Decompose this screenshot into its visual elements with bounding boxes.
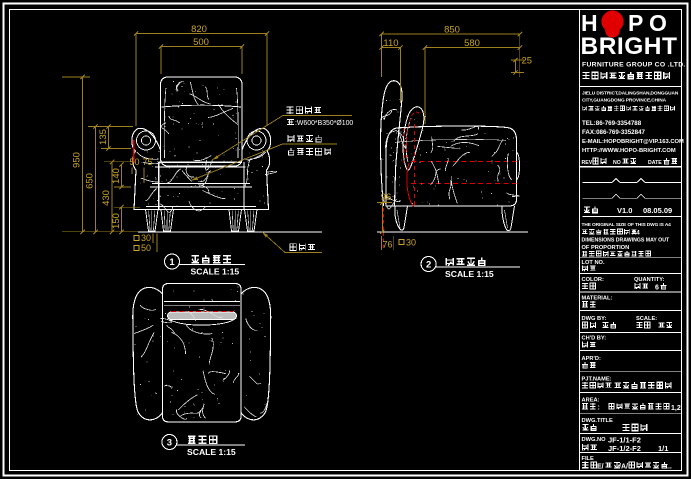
svg-text:APR'D:: APR'D: [582,356,601,362]
svg-text:150: 150 [111,213,122,229]
svg-text:E/: E/ [597,463,604,470]
svg-text:500: 500 [193,37,209,48]
svg-text:/A/: /A/ [619,463,628,470]
svg-text:REV: REV [582,160,593,166]
svg-text:MATERIAL:: MATERIAL: [582,296,613,302]
svg-text:1,2: 1,2 [671,405,681,412]
svg-text:CITY,GUANGDONG PROVINCE,CHINA: CITY,GUANGDONG PROVINCE,CHINA [582,98,667,104]
svg-text:DATE: DATE [648,160,662,166]
svg-text:140: 140 [111,168,122,184]
svg-text:SCALE 1:15: SCALE 1:15 [187,447,236,457]
svg-text:25: 25 [522,56,533,67]
svg-text:FILE: FILE [582,456,595,462]
svg-text:E-MAIL:HOPOBRIGHT@VIP.163.COM: E-MAIL:HOPOBRIGHT@VIP.163.COM [582,139,684,145]
svg-text:V1.0: V1.0 [617,206,632,215]
svg-text:650: 650 [85,173,96,189]
svg-text:AREA:: AREA: [582,397,600,403]
svg-text:3: 3 [167,438,172,449]
svg-text:430: 430 [101,190,112,206]
svg-text:580: 580 [464,38,480,49]
svg-text:6: 6 [655,285,659,292]
svg-text:NO: NO [613,160,621,166]
svg-text:FAX:086-769-3352847: FAX:086-769-3352847 [582,129,646,136]
svg-text:TEL:86-769-3354788: TEL:86-769-3354788 [582,120,642,127]
svg-text:1/1: 1/1 [658,444,668,453]
svg-text:DWG.TITLE: DWG.TITLE [582,418,613,424]
svg-text:A4: A4 [632,231,640,237]
svg-text:FURNITURE GROUP CO .LTD.: FURNITURE GROUP CO .LTD. [582,62,686,69]
svg-text:QUANTITY:: QUANTITY: [634,277,665,283]
svg-text:850: 850 [444,24,460,35]
svg-text:CH'D BY:: CH'D BY: [582,336,607,342]
svg-text:JIELU DISTRICT,DALINGSHAN,DONG: JIELU DISTRICT,DALINGSHAN,DONGGUAN [582,91,679,97]
svg-text:135: 135 [98,129,109,145]
svg-text:THE ORIGINAL SIZE OF THIS DWG: THE ORIGINAL SIZE OF THIS DWG IS A4 [582,222,672,228]
svg-text::: : [598,405,600,412]
svg-text:COLOR:: COLOR: [582,277,605,283]
svg-text:75: 75 [142,157,152,167]
svg-text:950: 950 [72,152,83,168]
svg-text:30: 30 [406,238,416,248]
svg-text:PJT.NAME:: PJT.NAME: [582,376,612,382]
svg-text:JF-1/2-F2: JF-1/2-F2 [608,444,641,453]
svg-text:820: 820 [191,24,207,35]
svg-text:08.05.09: 08.05.09 [643,206,672,215]
svg-text:SCALE 1:15: SCALE 1:15 [445,269,494,279]
svg-text:HTTP://WWW.HOPO-BRIGHT.COM: HTTP://WWW.HOPO-BRIGHT.COM [582,148,676,154]
svg-text:50: 50 [129,157,139,167]
svg-text::W600*B350*Ø100: :W600*B350*Ø100 [295,120,353,127]
svg-text:110: 110 [383,38,398,49]
svg-text:2: 2 [426,260,431,271]
svg-text:DIMENSIONS DRAWINGS MAY OUT: DIMENSIONS DRAWINGS MAY OUT [582,238,670,244]
svg-text:...: ... [666,463,672,470]
svg-text:30: 30 [141,233,151,243]
svg-text:50: 50 [141,243,151,253]
svg-text:LOT NO.: LOT NO. [582,260,605,266]
svg-text:SCALE:: SCALE: [636,316,657,322]
svg-text:OF PROPORTION: OF PROPORTION [582,245,630,251]
svg-text:1: 1 [169,257,175,268]
svg-text:DWG.NO: DWG.NO [582,437,607,443]
svg-text:DWG BY:: DWG BY: [582,316,607,322]
svg-text:SCALE 1:15: SCALE 1:15 [191,267,240,277]
svg-text:96: 96 [381,192,392,203]
svg-text:BRIGHT: BRIGHT [581,33,678,60]
svg-text:76: 76 [382,240,392,250]
